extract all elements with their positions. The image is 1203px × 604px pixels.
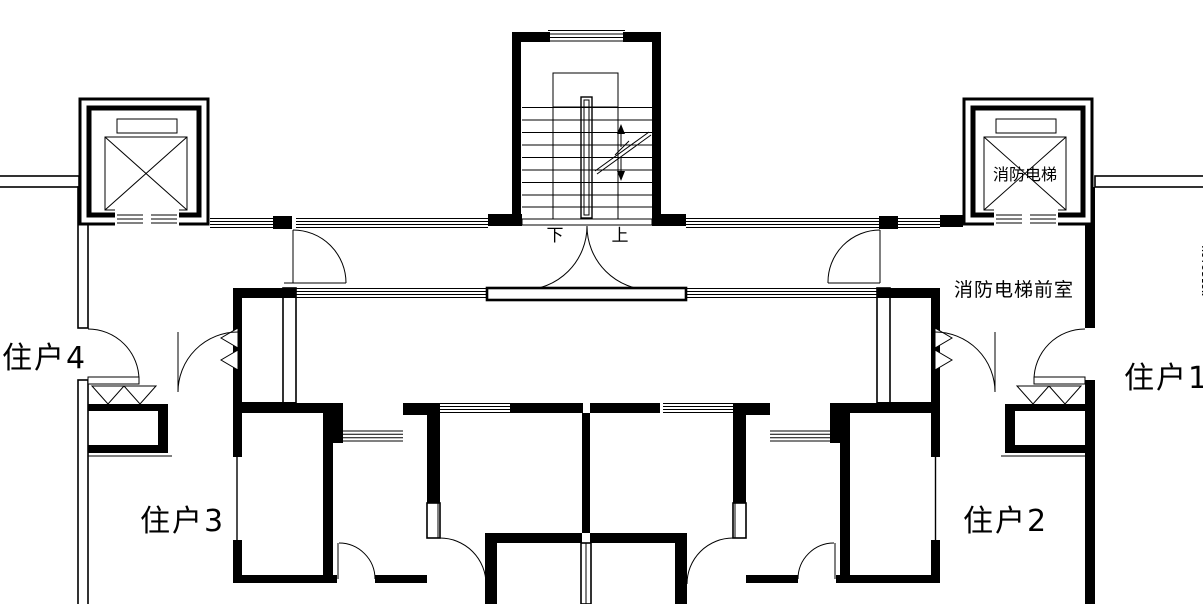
stair-landing bbox=[553, 73, 618, 107]
wall-window-left bbox=[440, 404, 510, 413]
corridor-top-window-left2 bbox=[296, 219, 488, 228]
unit-2-label: 住户2 bbox=[963, 504, 1048, 539]
corridor-center-beam bbox=[487, 288, 686, 300]
stair-double-door bbox=[522, 219, 652, 290]
stairs-up-label: 上 bbox=[612, 226, 629, 246]
right-shaft-room bbox=[877, 288, 995, 412]
left-elevator bbox=[80, 99, 208, 229]
left-shaft-room bbox=[178, 288, 296, 412]
pocket-door-right bbox=[687, 500, 735, 584]
lower-left-rooms bbox=[233, 413, 486, 584]
entry-door-triangle-icon bbox=[1049, 386, 1081, 404]
entry-door-triangle-icon bbox=[124, 386, 156, 404]
elevator-counterweight bbox=[117, 119, 177, 133]
unit4-entry bbox=[88, 329, 172, 456]
bedroom-door-left bbox=[338, 543, 375, 579]
wall-window-right bbox=[663, 404, 733, 413]
entry-door-triangle-icon bbox=[92, 386, 124, 404]
lower-right-rooms bbox=[687, 413, 940, 584]
door-leaf bbox=[1034, 377, 1085, 384]
corridor-bottom-window-left bbox=[296, 289, 487, 298]
corridor-fire-door-left bbox=[284, 230, 346, 283]
corridor-column-left bbox=[273, 216, 292, 229]
corridor-top-window-left bbox=[210, 219, 273, 228]
corridor-top-window-right bbox=[898, 219, 940, 228]
stairs-down-label: 下 bbox=[547, 226, 564, 246]
fire-elevator-lobby-label: 消防电梯前室 bbox=[954, 279, 1074, 301]
lightwell-window-left bbox=[343, 431, 403, 441]
shaft-door-triangle-icon bbox=[221, 350, 238, 370]
center-core bbox=[485, 413, 687, 604]
shaft-door-triangle-icon bbox=[935, 350, 952, 370]
unit1-entry bbox=[1001, 329, 1085, 456]
stair-top-window bbox=[548, 31, 625, 42]
staircase: 下 上 bbox=[488, 31, 686, 291]
pocket-door-left bbox=[438, 500, 486, 584]
shaft-door-triangle-icon bbox=[935, 328, 952, 348]
unit-3-label: 住户3 bbox=[140, 504, 225, 539]
corridor-column-right bbox=[879, 216, 898, 229]
bedroom-door-right bbox=[798, 543, 835, 579]
shaft-door-triangle-icon bbox=[221, 328, 238, 348]
entry-door-triangle-icon bbox=[1017, 386, 1049, 404]
floor-plan: 消防电梯 bbox=[0, 0, 1203, 604]
fire-elevator-counterweight bbox=[996, 119, 1056, 133]
corridor-top-window-right2 bbox=[686, 219, 879, 228]
fire-elevator-label: 消防电梯 bbox=[993, 165, 1057, 184]
corridor-fire-door-right bbox=[828, 230, 880, 283]
corridor-bottom-window-right bbox=[686, 289, 877, 298]
fire-elevator: 消防电梯 bbox=[964, 99, 1092, 229]
lightwell-window-right bbox=[770, 431, 830, 441]
unit-1-label: 住户1 bbox=[1124, 361, 1203, 396]
unit-4-label: 住户4 bbox=[2, 341, 87, 376]
door-leaf bbox=[88, 377, 139, 384]
floor-plan-canvas: 消防电梯 bbox=[0, 0, 1203, 604]
stair-treads bbox=[522, 107, 652, 224]
